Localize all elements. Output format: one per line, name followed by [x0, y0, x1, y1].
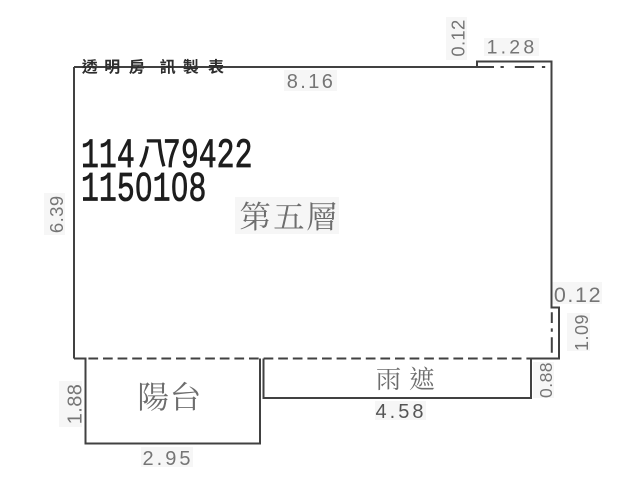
- svg-text:6.39: 6.39: [46, 195, 67, 233]
- svg-text:0.12: 0.12: [448, 19, 469, 56]
- svg-text:1.28: 1.28: [487, 37, 538, 59]
- svg-text:8.16: 8.16: [287, 71, 336, 93]
- svg-text:0.12: 0.12: [554, 283, 602, 307]
- svg-text:1.88: 1.88: [65, 384, 87, 425]
- svg-text:4.58: 4.58: [376, 401, 427, 423]
- svg-text:0.88: 0.88: [536, 362, 556, 398]
- svg-text:2.95: 2.95: [143, 448, 194, 470]
- svg-text:1.09: 1.09: [572, 314, 592, 351]
